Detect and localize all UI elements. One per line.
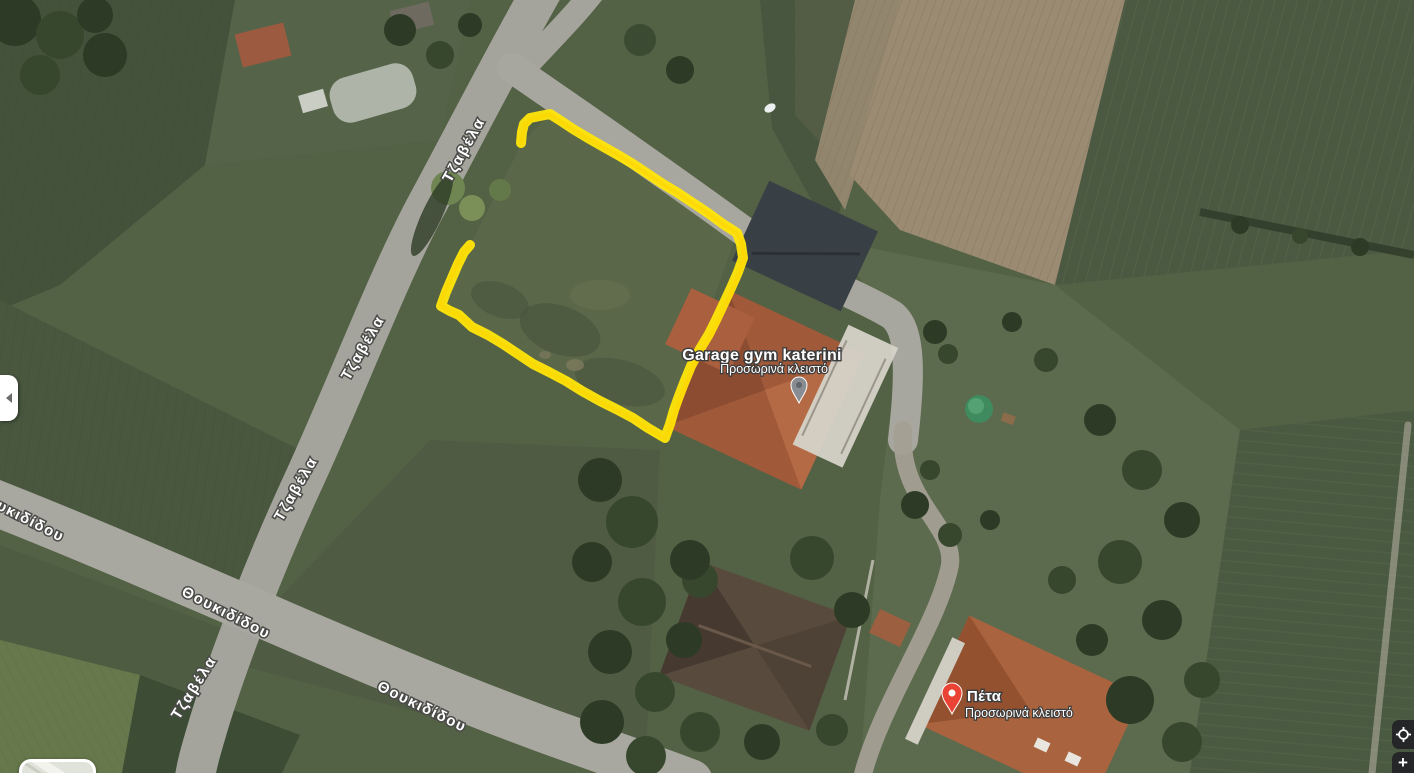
zoom-in-button[interactable]: + [1392, 752, 1414, 773]
zoom-in-label: + [1398, 754, 1408, 771]
poi-peta-name[interactable]: Πέτα [967, 688, 1002, 705]
my-location-button[interactable] [1392, 720, 1414, 749]
my-location-icon [1396, 727, 1411, 742]
chevron-left-icon [6, 393, 12, 403]
map-canvas[interactable]: Τζαβέλα Τζαβέλα Τζαβέλα Τζαβέλα Θουκιδίδ… [0, 0, 1414, 773]
poi-peta-status: Προσωρινά κλειστό [965, 706, 1073, 720]
satellite-imagery: Τζαβέλα Τζαβέλα Τζαβέλα Τζαβέλα Θουκιδίδ… [0, 0, 1414, 773]
side-panel-toggle-button[interactable] [0, 375, 18, 421]
poi-garage-gym-status: Προσωρινά κλειστό [720, 362, 828, 376]
map-preview-widget[interactable] [19, 759, 96, 773]
